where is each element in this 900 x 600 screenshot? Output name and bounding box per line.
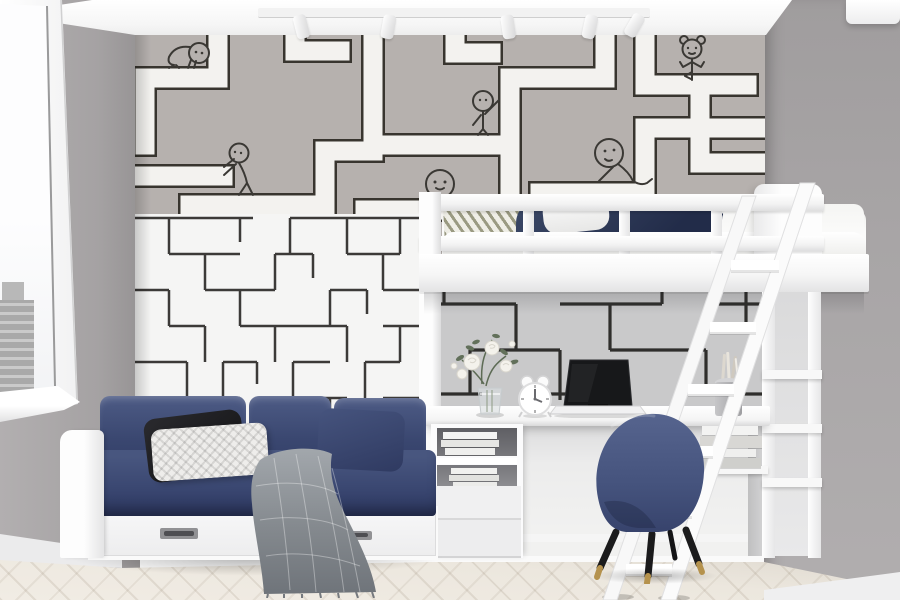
room-photo — [0, 0, 900, 600]
cabinet-drawer — [433, 486, 521, 520]
window-sash-lines — [0, 0, 80, 420]
shelf-board — [762, 370, 822, 379]
spotlight-icon — [500, 14, 516, 40]
bed-guard-rail-mid — [419, 236, 824, 251]
desk-chair — [582, 406, 714, 584]
loft-bed-deck — [419, 254, 869, 292]
cabinet-cubby — [437, 428, 517, 456]
sofa-armrest — [60, 430, 104, 558]
pen-cup-body — [715, 382, 742, 416]
book — [445, 448, 495, 455]
ceiling-fixture — [846, 0, 900, 24]
bed-guard-rail-top — [419, 194, 824, 211]
ceiling — [0, 0, 900, 40]
cabinet-shelf-board — [437, 458, 517, 464]
drawer-handle — [160, 528, 198, 539]
pen-cup — [714, 352, 744, 416]
book — [451, 468, 497, 474]
cabinet-drawer — [433, 520, 521, 558]
book — [449, 475, 499, 481]
gray-throw-blanket — [240, 446, 400, 598]
book — [441, 440, 499, 447]
wall-corner-shadow — [135, 33, 151, 433]
track-light — [258, 8, 650, 18]
book — [443, 432, 497, 439]
shelf-board — [762, 478, 822, 487]
shelf-board — [762, 424, 822, 433]
drawer-handle-slot — [164, 531, 194, 536]
desk-cabinet — [431, 424, 523, 558]
